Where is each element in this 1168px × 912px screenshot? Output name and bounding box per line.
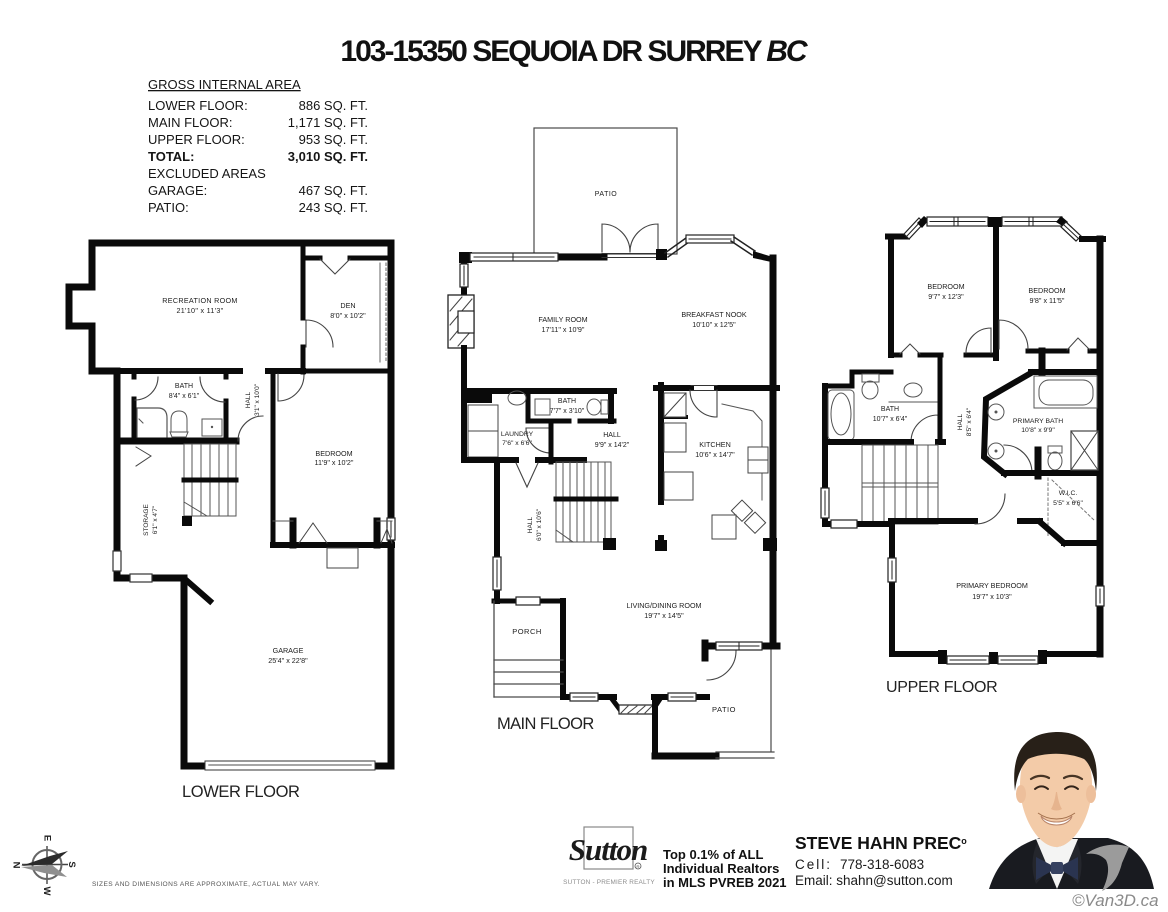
svg-text:STORAGE: STORAGE bbox=[143, 504, 150, 536]
svg-text:BREAKFAST NOOK: BREAKFAST NOOK bbox=[681, 310, 747, 319]
svg-text:Individual Realtors: Individual Realtors bbox=[663, 861, 779, 876]
svg-text:BATH: BATH bbox=[881, 406, 899, 413]
svg-text:STEVE HAHN PRECo: STEVE HAHN PRECo bbox=[795, 833, 967, 853]
svg-text:103-15350 SEQUOIA DR SURREY BC: 103-15350 SEQUOIA DR SURREY BC bbox=[340, 35, 809, 68]
svg-text:19'7" x 10'3": 19'7" x 10'3" bbox=[972, 592, 1012, 601]
svg-text:9'7" x 12'3": 9'7" x 12'3" bbox=[928, 292, 964, 301]
svg-text:UPPER FLOOR:: UPPER FLOOR: bbox=[148, 132, 245, 147]
svg-text:9'8" x 11'5": 9'8" x 11'5" bbox=[1030, 296, 1065, 305]
svg-text:LOWER FLOOR: LOWER FLOOR bbox=[182, 783, 300, 801]
svg-text:3'1" x 10'0": 3'1" x 10'0" bbox=[254, 383, 261, 416]
svg-text:10'10" x 12'5": 10'10" x 12'5" bbox=[692, 320, 736, 329]
svg-text:886 SQ. FT.: 886 SQ. FT. bbox=[299, 98, 368, 113]
svg-text:MAIN FLOOR:: MAIN FLOOR: bbox=[148, 115, 233, 130]
svg-text:TOTAL:: TOTAL: bbox=[148, 149, 194, 164]
svg-text:E: E bbox=[41, 835, 52, 841]
svg-text:RECREATION ROOM: RECREATION ROOM bbox=[162, 296, 237, 305]
svg-text:21'10" x 11'3": 21'10" x 11'3" bbox=[176, 306, 223, 315]
svg-text:in MLS PVREB 2021: in MLS PVREB 2021 bbox=[663, 875, 787, 890]
svg-text:HALL: HALL bbox=[245, 391, 252, 408]
svg-text:PATIO: PATIO bbox=[712, 705, 736, 714]
svg-text:GARAGE: GARAGE bbox=[273, 646, 304, 655]
svg-text:10'6" x 14'7": 10'6" x 14'7" bbox=[695, 450, 735, 459]
svg-text:7'7" x 3'10": 7'7" x 3'10" bbox=[550, 408, 585, 415]
svg-text:BEDROOM: BEDROOM bbox=[315, 449, 352, 458]
svg-text:Email: shahn@sutton.com: Email: shahn@sutton.com bbox=[795, 873, 953, 888]
svg-text:S: S bbox=[66, 861, 77, 867]
svg-text:FAMILY ROOM: FAMILY ROOM bbox=[538, 315, 587, 324]
svg-text:7'6" x 6'6": 7'6" x 6'6" bbox=[502, 440, 532, 447]
svg-text:SIZES AND DIMENSIONS ARE APPRO: SIZES AND DIMENSIONS ARE APPROXIMATE, AC… bbox=[92, 881, 320, 888]
svg-text:DEN: DEN bbox=[340, 301, 355, 310]
svg-text:8'0" x 10'2": 8'0" x 10'2" bbox=[330, 311, 366, 320]
svg-text:10'7" x 6'4": 10'7" x 6'4" bbox=[873, 416, 908, 423]
svg-text:3,010 SQ. FT.: 3,010 SQ. FT. bbox=[288, 149, 368, 164]
svg-text:GROSS INTERNAL AREA: GROSS INTERNAL AREA bbox=[148, 77, 301, 92]
svg-text:HALL: HALL bbox=[603, 432, 621, 439]
svg-text:6'0" x 10'6": 6'0" x 10'6" bbox=[536, 508, 543, 541]
svg-text:HALL: HALL bbox=[527, 516, 534, 533]
svg-text:467 SQ. FT.: 467 SQ. FT. bbox=[299, 183, 368, 198]
svg-text:SUTTON - PREMIER REALTY: SUTTON - PREMIER REALTY bbox=[563, 879, 655, 886]
svg-text:Top 0.1% of ALL: Top 0.1% of ALL bbox=[663, 847, 763, 862]
svg-text:EXCLUDED AREAS: EXCLUDED AREAS bbox=[148, 166, 266, 181]
svg-text:UPPER FLOOR: UPPER FLOOR bbox=[886, 679, 997, 696]
svg-text:PRIMARY BEDROOM: PRIMARY BEDROOM bbox=[956, 581, 1028, 590]
svg-text:25'4" x 22'8": 25'4" x 22'8" bbox=[268, 656, 308, 665]
svg-text:BATH: BATH bbox=[558, 398, 576, 405]
svg-text:19'7" x 14'5": 19'7" x 14'5" bbox=[644, 611, 684, 620]
svg-text:8'4" x 6'1": 8'4" x 6'1" bbox=[169, 393, 200, 400]
svg-text:HALL: HALL bbox=[957, 413, 964, 430]
svg-text:W: W bbox=[41, 887, 52, 896]
svg-text:PRIMARY BATH: PRIMARY BATH bbox=[1013, 418, 1063, 425]
svg-text:9'9" x 14'2": 9'9" x 14'2" bbox=[595, 442, 630, 449]
svg-text:LAUNDRY: LAUNDRY bbox=[501, 431, 534, 438]
svg-text:BEDROOM: BEDROOM bbox=[1028, 286, 1065, 295]
svg-text:1,171 SQ. FT.: 1,171 SQ. FT. bbox=[288, 115, 368, 130]
svg-text:953 SQ. FT.: 953 SQ. FT. bbox=[299, 132, 368, 147]
svg-text:N: N bbox=[10, 862, 21, 869]
svg-text:BEDROOM: BEDROOM bbox=[927, 282, 964, 291]
svg-text:6'1" x 4'7": 6'1" x 4'7" bbox=[152, 505, 159, 534]
svg-text:©Van3D.ca: ©Van3D.ca bbox=[1072, 891, 1159, 910]
svg-text:PORCH: PORCH bbox=[512, 627, 542, 636]
svg-text:17'11" x 10'9": 17'11" x 10'9" bbox=[542, 325, 585, 334]
svg-text:KITCHEN: KITCHEN bbox=[699, 440, 731, 449]
svg-text:LIVING/DINING ROOM: LIVING/DINING ROOM bbox=[626, 601, 701, 610]
svg-text:Cell:778-318-6083: Cell:778-318-6083 bbox=[795, 857, 924, 872]
svg-text:PATIO: PATIO bbox=[595, 191, 618, 198]
svg-text:10'8" x 9'9": 10'8" x 9'9" bbox=[1021, 427, 1055, 434]
svg-text:8'5" x 6'4": 8'5" x 6'4" bbox=[966, 407, 973, 436]
svg-text:MAIN FLOOR: MAIN FLOOR bbox=[497, 715, 594, 733]
svg-text:BATH: BATH bbox=[175, 383, 193, 390]
svg-text:GARAGE:: GARAGE: bbox=[148, 183, 207, 198]
svg-text:LOWER FLOOR:: LOWER FLOOR: bbox=[148, 98, 248, 113]
svg-text:243 SQ. FT.: 243 SQ. FT. bbox=[299, 200, 368, 215]
svg-text:PATIO:: PATIO: bbox=[148, 200, 189, 215]
svg-text:11'9" x 10'2": 11'9" x 10'2" bbox=[315, 458, 354, 467]
svg-text:Sutton: Sutton bbox=[569, 832, 647, 867]
